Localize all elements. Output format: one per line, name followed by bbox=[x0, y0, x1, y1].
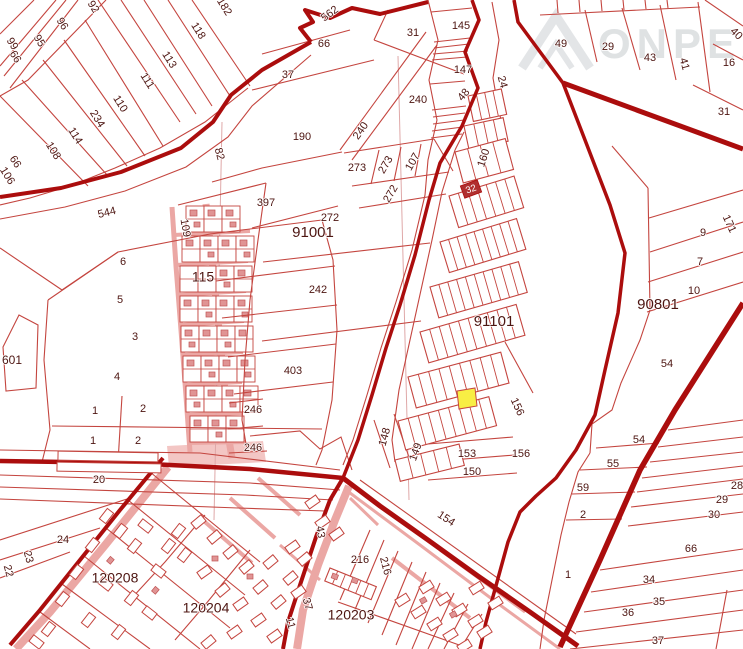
parcel-label: 2 bbox=[140, 403, 146, 415]
building-footprint bbox=[222, 240, 229, 246]
parcel-label: 1 bbox=[565, 569, 571, 581]
building-footprint bbox=[190, 390, 197, 396]
parcel-label: 91101 bbox=[474, 313, 515, 330]
parcel-label: 31 bbox=[718, 106, 730, 118]
parcel-label: 273 bbox=[348, 162, 366, 174]
building-footprint bbox=[208, 390, 215, 396]
parcel-label: 35 bbox=[653, 596, 665, 608]
parcel-label: 31 bbox=[407, 27, 419, 39]
parcel-label: 30 bbox=[708, 509, 720, 521]
parcel-label: 1 bbox=[92, 405, 98, 417]
building-footprint bbox=[239, 330, 246, 336]
building-footprint bbox=[202, 300, 209, 306]
parcel-label: 190 bbox=[293, 131, 311, 143]
parcel-label: 28 bbox=[731, 480, 743, 492]
building-footprint bbox=[230, 420, 237, 426]
map-background bbox=[0, 0, 743, 649]
parcel-label: 55 bbox=[607, 458, 619, 470]
parcel-label: 4 bbox=[114, 371, 120, 383]
parcel-label: 5 bbox=[117, 294, 123, 306]
parcel-label: 156 bbox=[512, 448, 530, 460]
parcel-label: 272 bbox=[321, 212, 339, 224]
parcel-label: 147 bbox=[454, 64, 472, 76]
building-footprint bbox=[212, 420, 219, 426]
parcel-label: 242 bbox=[309, 284, 327, 296]
parcel-label: 120204 bbox=[183, 600, 230, 616]
parcel-label: 403 bbox=[284, 365, 302, 377]
building-footprint bbox=[185, 330, 192, 336]
parcel-label: 20 bbox=[93, 474, 105, 486]
highlighted-parcel[interactable] bbox=[457, 388, 477, 409]
parcel-label: 66 bbox=[318, 38, 330, 50]
parcel-label: 90801 bbox=[637, 296, 679, 313]
watermark-text: ONPEA bbox=[598, 20, 743, 67]
building-footprint bbox=[238, 270, 245, 276]
parcel-label: 240 bbox=[409, 94, 427, 106]
pink-road bbox=[186, 413, 243, 415]
building-footprint bbox=[205, 360, 212, 366]
parcel-label: 6 bbox=[120, 256, 126, 268]
building-footprint bbox=[225, 342, 231, 347]
building-footprint bbox=[240, 240, 247, 246]
parcel-label: 7 bbox=[697, 256, 703, 268]
parcel-label: 9 bbox=[700, 227, 706, 239]
parcel-label: 43 bbox=[313, 525, 327, 539]
parcel-label: 216 bbox=[351, 554, 369, 566]
building-footprint bbox=[224, 282, 230, 287]
parcel-label: 10 bbox=[688, 285, 700, 297]
parcel-label: 49 bbox=[555, 38, 567, 50]
building-footprint bbox=[206, 312, 212, 317]
parcel-label: 59 bbox=[577, 482, 589, 494]
building-footprint bbox=[186, 240, 193, 246]
building-footprint bbox=[216, 432, 222, 437]
building-footprint bbox=[194, 222, 200, 227]
parcel-label: 145 bbox=[452, 20, 470, 32]
parcel-label: 54 bbox=[661, 358, 673, 370]
parcel-label: 115 bbox=[192, 269, 215, 285]
parcel-label: 1 bbox=[90, 435, 96, 447]
parcel-label: 43 bbox=[644, 52, 656, 64]
building-footprint bbox=[223, 360, 230, 366]
cadastral-map[interactable]: ONPEA32996695969211811311111023411410866… bbox=[0, 0, 743, 649]
building-footprint bbox=[212, 556, 218, 561]
parcel-label: 66 bbox=[685, 543, 697, 555]
building-footprint bbox=[247, 574, 253, 579]
parcel-label: 54 bbox=[633, 434, 645, 446]
building-footprint bbox=[208, 252, 214, 257]
building-footprint bbox=[184, 300, 191, 306]
parcel-label: 29 bbox=[602, 41, 614, 53]
cadastral-map-viewport[interactable]: ONPEA32996695969211811311111023411410866… bbox=[0, 0, 743, 649]
building-footprint bbox=[226, 390, 233, 396]
parcel-label: 120203 bbox=[328, 607, 375, 623]
building-footprint bbox=[220, 270, 227, 276]
building-footprint bbox=[226, 210, 233, 216]
parcel-label: 16 bbox=[723, 57, 735, 69]
parcel-label: 37 bbox=[282, 69, 294, 81]
building-footprint bbox=[57, 462, 161, 473]
parcel-label: 37 bbox=[652, 635, 664, 647]
building-footprint bbox=[238, 300, 245, 306]
building-footprint bbox=[194, 402, 200, 407]
building-footprint bbox=[203, 330, 210, 336]
building-footprint bbox=[204, 240, 211, 246]
parcel-label: 601 bbox=[2, 353, 22, 367]
building-footprint bbox=[244, 252, 250, 257]
building-footprint bbox=[194, 420, 201, 426]
building-footprint bbox=[245, 372, 251, 377]
parcel-label: 91001 bbox=[292, 224, 334, 241]
building-footprint bbox=[220, 300, 227, 306]
building-footprint bbox=[187, 360, 194, 366]
parcel-label: 2 bbox=[580, 509, 586, 521]
building-footprint bbox=[221, 330, 228, 336]
building-footprint bbox=[58, 451, 158, 462]
parcel-label: 153 bbox=[458, 448, 476, 460]
building-footprint bbox=[230, 222, 236, 227]
parcel-label: 246 bbox=[244, 404, 262, 416]
parcel-label: 246 bbox=[244, 442, 262, 454]
parcel-label: 29 bbox=[716, 494, 728, 506]
parcel-label: 3 bbox=[132, 331, 138, 343]
parcel-label: 120208 bbox=[92, 570, 139, 586]
building-footprint bbox=[190, 210, 197, 216]
building-footprint bbox=[208, 210, 215, 216]
parcel-label: 36 bbox=[622, 607, 634, 619]
building-footprint bbox=[242, 312, 248, 317]
parcel-label: 24 bbox=[57, 534, 69, 546]
parcel-label: 2 bbox=[135, 435, 141, 447]
parcel-label: 397 bbox=[257, 197, 275, 209]
building-footprint bbox=[209, 372, 215, 377]
building-footprint bbox=[189, 342, 195, 347]
parcel-label: 34 bbox=[643, 574, 655, 586]
parcel-label: 150 bbox=[463, 466, 481, 478]
